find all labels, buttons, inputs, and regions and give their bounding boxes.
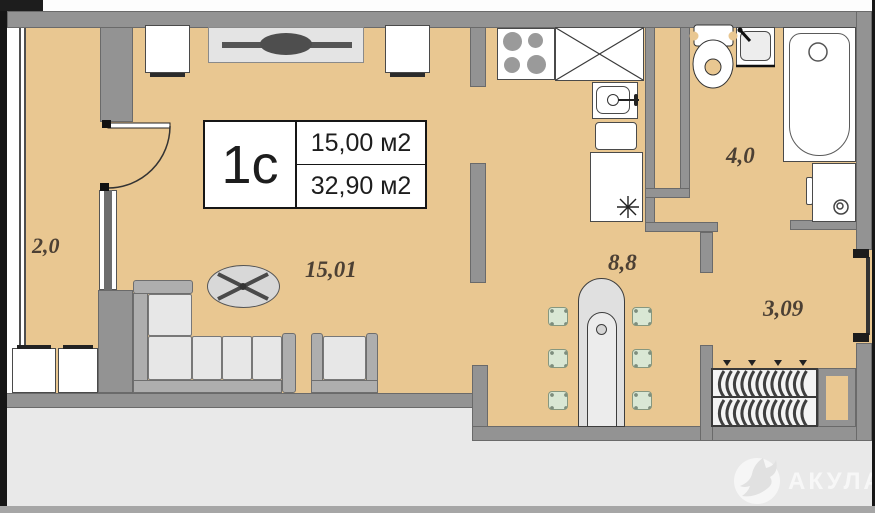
- frame-corner-topleft: [0, 0, 43, 11]
- coffee-table-legs: [218, 274, 268, 299]
- kitchen-counter-cross-icon: [556, 28, 643, 80]
- balcony-door: [100, 120, 170, 191]
- floor-plan: 2,0 15,01 8,8 4,0 3,09 1с 15,00 м2 32,90…: [0, 0, 875, 513]
- toilet: [690, 25, 738, 88]
- fridge-snowflake-icon: [617, 196, 639, 218]
- kitchen-faucet-icon: [608, 94, 640, 106]
- washer-drum-icon: [834, 200, 848, 214]
- bathtub-drain-icon: [809, 43, 827, 61]
- plan-details-overlay: [0, 0, 875, 513]
- shark-icon: [734, 458, 780, 504]
- watermark-text: АКУЛА: [788, 468, 875, 496]
- wardrobe-hooks: [723, 360, 807, 366]
- washbasin-faucet-icon: [736, 28, 775, 67]
- frame-strip-bottom: [0, 506, 875, 513]
- frame-edge-left: [0, 0, 7, 513]
- wardrobe-hanger-strokes: [720, 371, 807, 426]
